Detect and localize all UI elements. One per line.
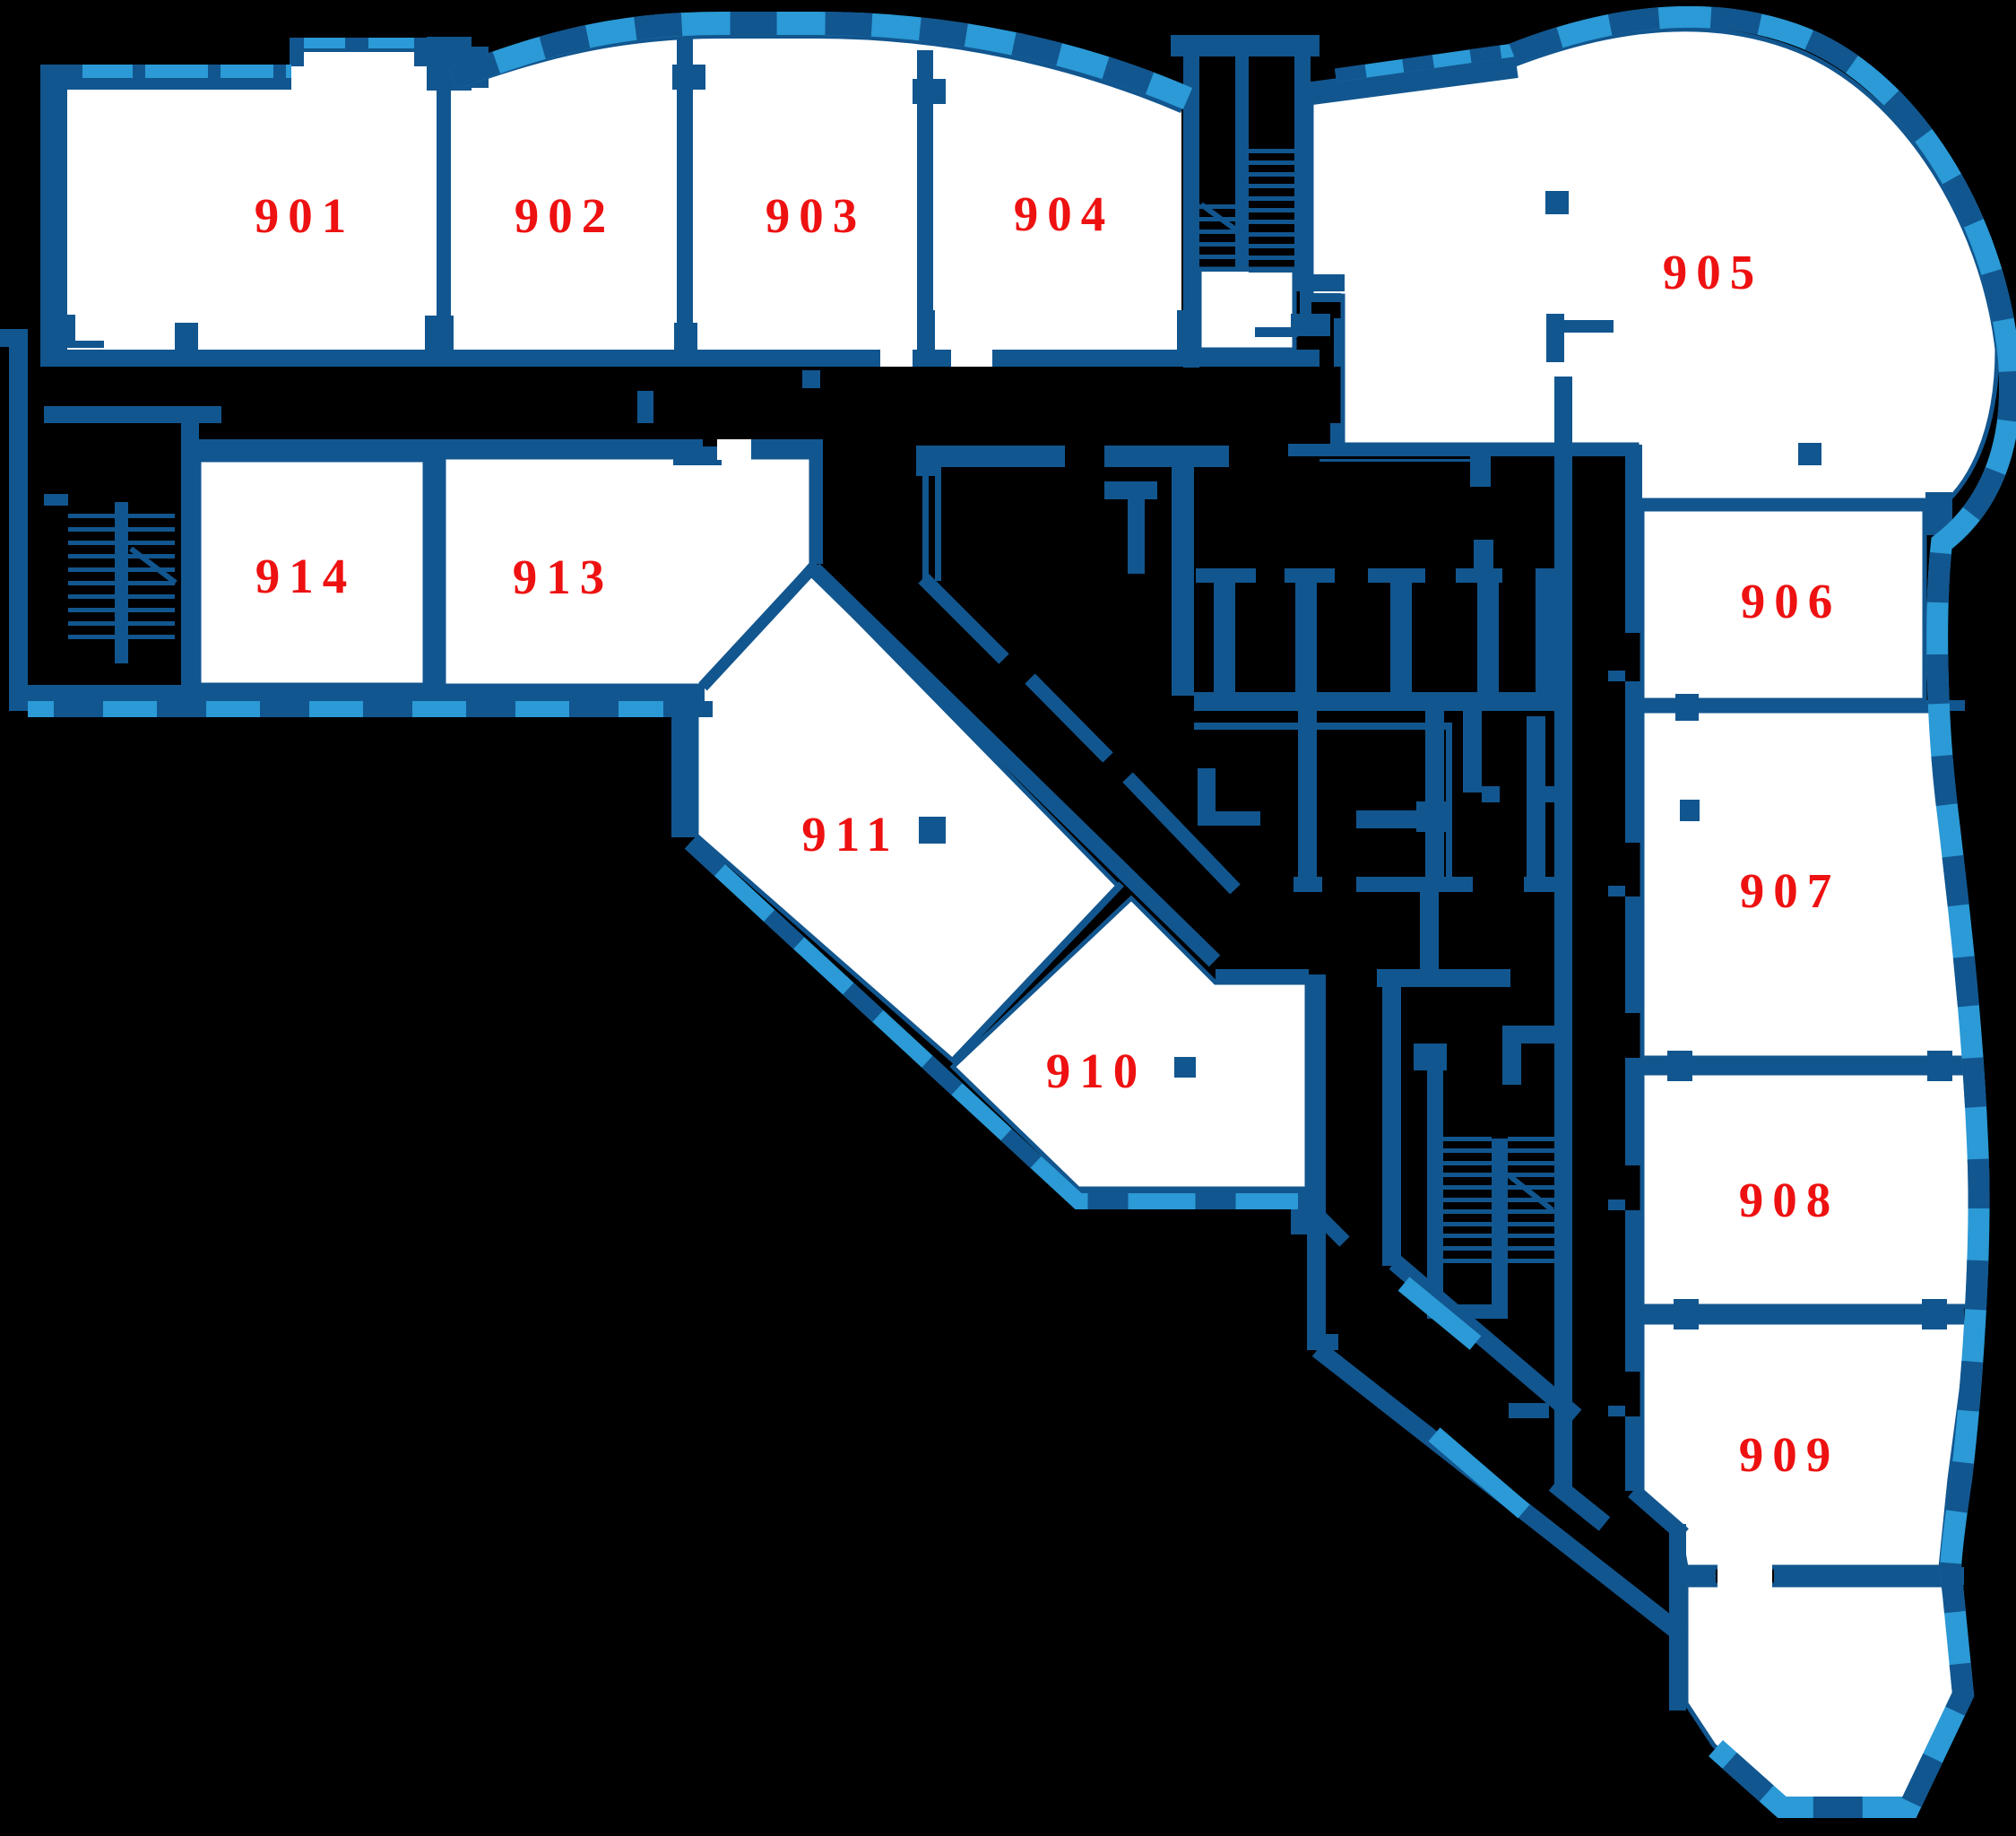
svg-text:905: 905: [1663, 245, 1764, 299]
svg-text:910: 910: [1046, 1044, 1147, 1098]
svg-text:906: 906: [1741, 574, 1842, 628]
svg-text:909: 909: [1739, 1427, 1840, 1482]
svg-text:913: 913: [513, 550, 614, 604]
svg-text:901: 901: [255, 188, 356, 243]
svg-text:902: 902: [515, 188, 616, 243]
svg-text:908: 908: [1739, 1173, 1840, 1227]
svg-text:911: 911: [801, 807, 899, 862]
svg-text:914: 914: [255, 549, 357, 603]
svg-text:904: 904: [1014, 186, 1115, 241]
svg-text:907: 907: [1740, 863, 1841, 918]
svg-text:903: 903: [766, 188, 867, 243]
